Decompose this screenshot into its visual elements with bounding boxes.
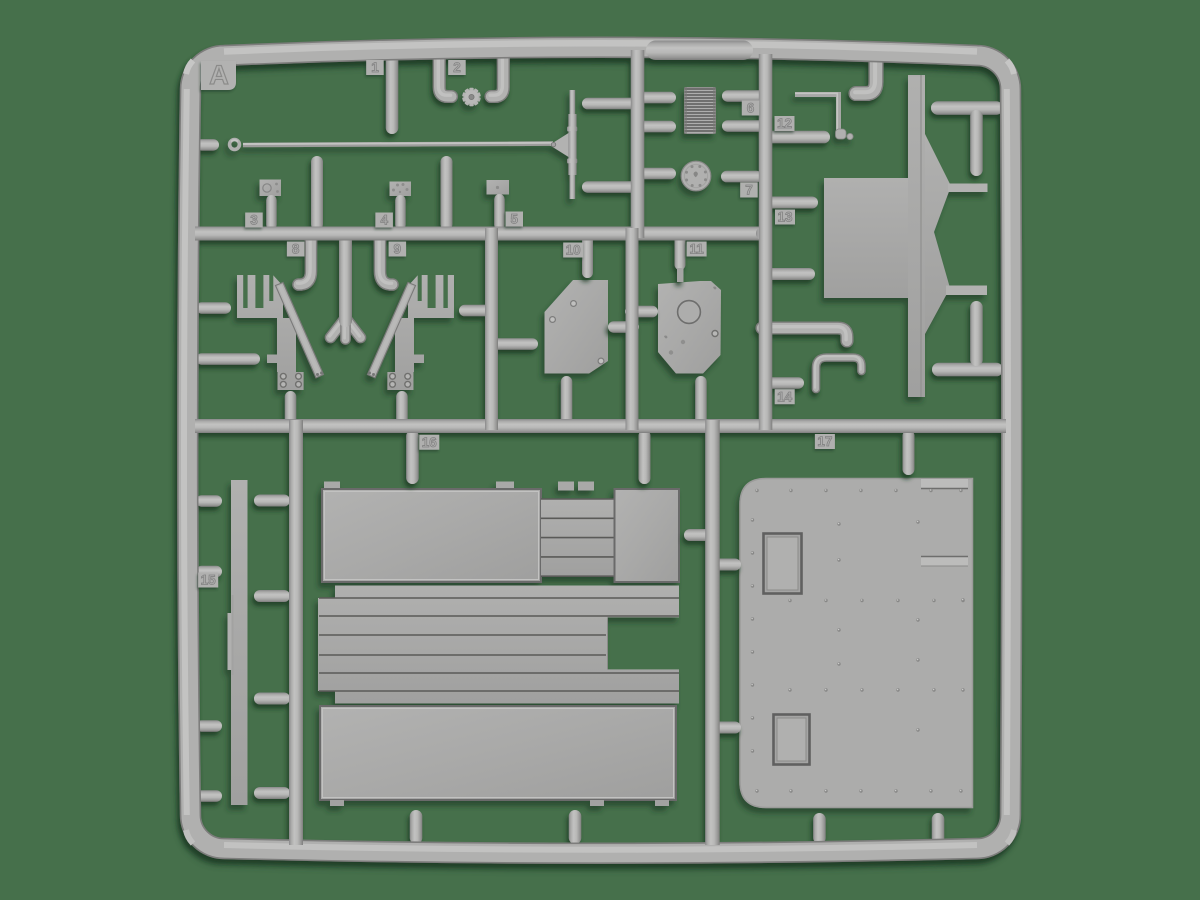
svg-text:13: 13 <box>777 210 793 225</box>
svg-text:2: 2 <box>453 60 461 75</box>
svg-text:5: 5 <box>510 212 518 227</box>
svg-text:8: 8 <box>292 242 300 257</box>
svg-text:6: 6 <box>747 101 755 116</box>
svg-text:11: 11 <box>689 242 704 257</box>
svg-text:A: A <box>209 60 229 90</box>
svg-text:7: 7 <box>745 183 753 198</box>
svg-text:9: 9 <box>394 242 402 257</box>
svg-text:17: 17 <box>817 434 832 449</box>
svg-text:12: 12 <box>777 116 792 131</box>
svg-text:10: 10 <box>566 243 581 258</box>
svg-text:15: 15 <box>201 573 217 588</box>
svg-text:14: 14 <box>777 389 793 404</box>
svg-text:4: 4 <box>380 213 388 228</box>
svg-text:3: 3 <box>250 213 258 228</box>
svg-text:16: 16 <box>422 435 438 450</box>
svg-text:1: 1 <box>371 60 379 75</box>
